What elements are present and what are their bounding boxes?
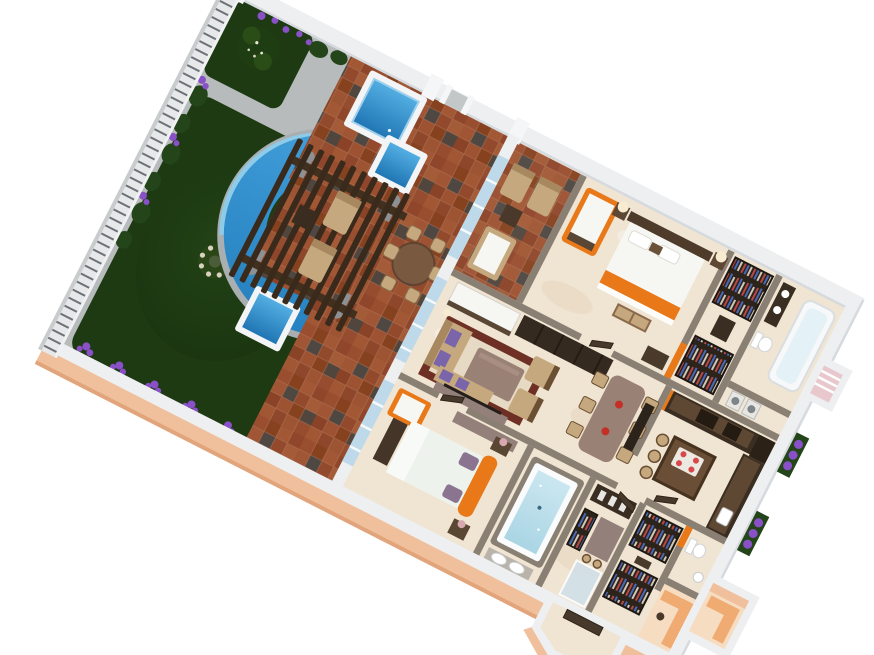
rotated-plan-group bbox=[15, 0, 874, 655]
floor-plan-render bbox=[0, 0, 874, 655]
floor-plan-canvas bbox=[0, 0, 874, 655]
